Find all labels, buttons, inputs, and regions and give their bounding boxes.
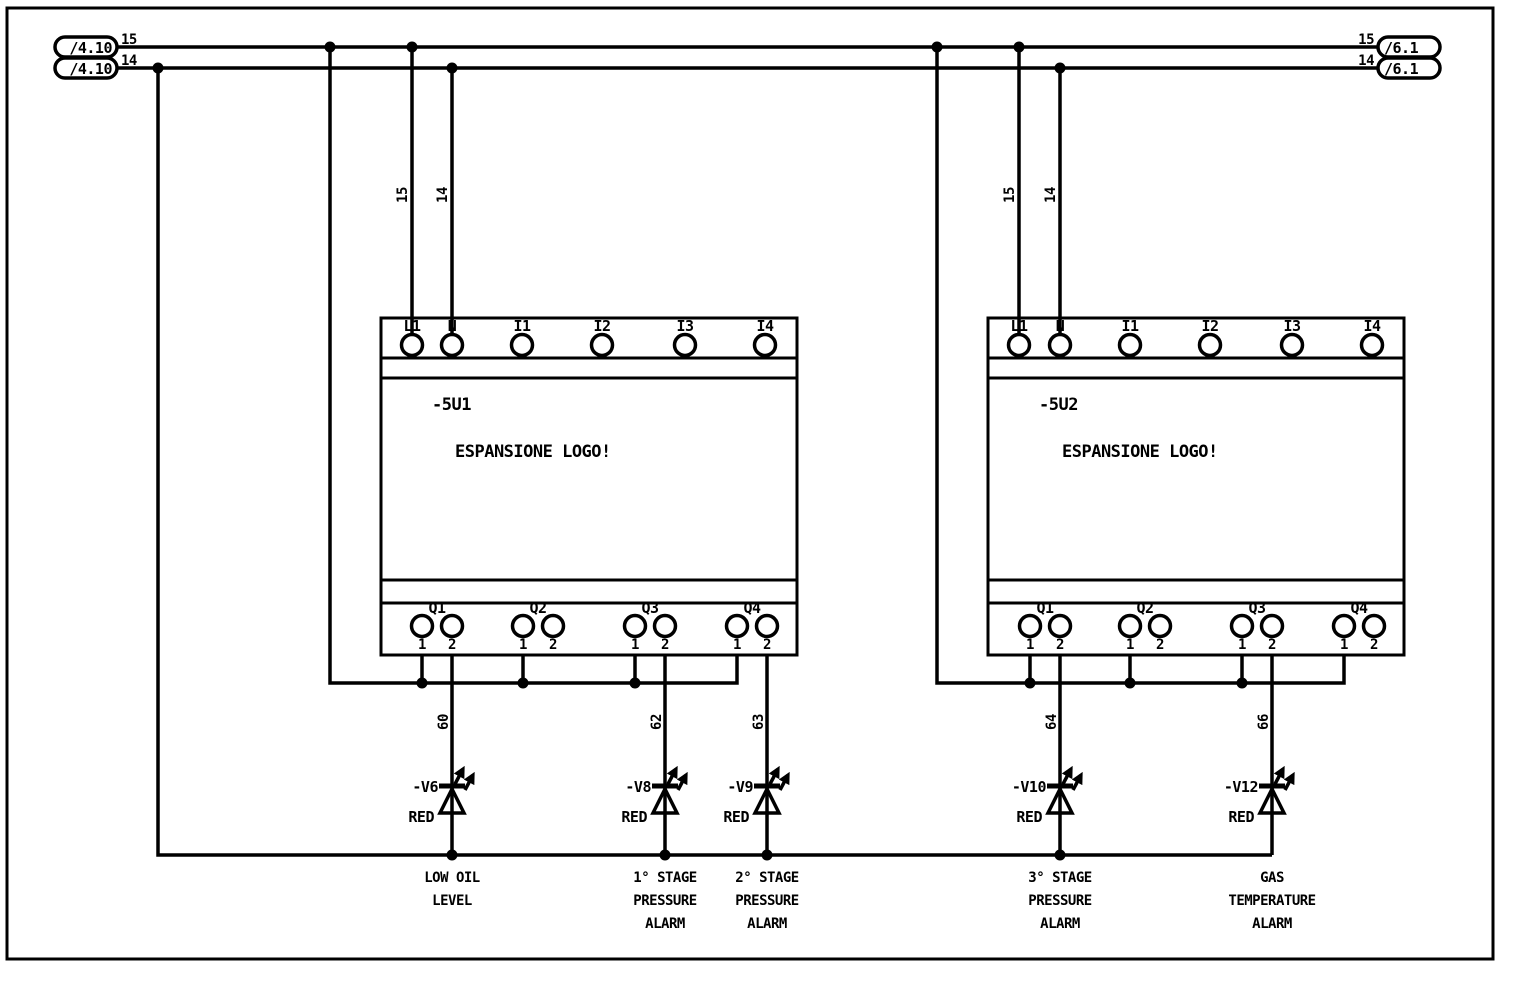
junction-dot bbox=[447, 850, 458, 861]
function-label-line: PRESSURE bbox=[735, 893, 799, 909]
sheet-ref-left-14: /4.10 bbox=[69, 60, 112, 78]
terminal-circle bbox=[1009, 335, 1030, 356]
terminal-label-I1: I1 bbox=[513, 317, 531, 335]
led-branch-V9: 63 -V9 RED 2° STAGE PRESSURE ALARM bbox=[723, 655, 798, 932]
module1-output-bus bbox=[325, 42, 738, 689]
terminal-circle bbox=[512, 335, 533, 356]
module-title: ESPANSIONE LOGO! bbox=[455, 442, 611, 462]
terminal-circle bbox=[1020, 616, 1041, 637]
pin-label: 2 bbox=[1268, 637, 1276, 653]
terminal-circle bbox=[1364, 616, 1385, 637]
led-emission-arrow-icon bbox=[770, 769, 778, 784]
junction-dot bbox=[1014, 42, 1025, 53]
pin-label: 1 bbox=[1340, 637, 1348, 653]
output-label-Q3: Q3 bbox=[1248, 599, 1266, 617]
terminal-circle bbox=[1150, 616, 1171, 637]
schematic-canvas: /4.10 /4.10 15 14 /6.1 /6.1 15 14 15 14 … bbox=[0, 0, 1514, 982]
junction-dot bbox=[630, 678, 641, 689]
terminal-circle bbox=[1050, 335, 1071, 356]
led-emission-arrow-icon bbox=[465, 775, 473, 790]
led-emission-arrow-icon bbox=[1285, 775, 1293, 790]
junction-dot bbox=[1125, 678, 1136, 689]
terminal-label-L1: L1 bbox=[1010, 317, 1028, 335]
module-5U1: -5U1 ESPANSIONE LOGO! L1 N I1 I2 I3 I4 Q… bbox=[381, 317, 797, 655]
module-tag: -5U2 bbox=[1039, 395, 1078, 415]
function-label-line: GAS bbox=[1260, 870, 1284, 886]
wire-label-14: 14 bbox=[435, 187, 451, 203]
terminal-circle bbox=[675, 335, 696, 356]
function-label-line: 3° STAGE bbox=[1028, 870, 1092, 886]
terminal-circle bbox=[513, 616, 534, 637]
led-branch-V12: 66 -V12 RED GAS TEMPERATURE ALARM bbox=[1224, 655, 1316, 932]
terminal-circle bbox=[592, 335, 613, 356]
module-title: ESPANSIONE LOGO! bbox=[1062, 442, 1218, 462]
terminal-circle bbox=[625, 616, 646, 637]
rail-15-label-left: 15 bbox=[121, 32, 137, 48]
function-label-line: ALARM bbox=[747, 916, 787, 932]
led-emission-arrow-icon bbox=[1063, 769, 1071, 784]
pin-label: 2 bbox=[1056, 637, 1064, 653]
led-tag: -V8 bbox=[625, 778, 651, 796]
led-color-label: RED bbox=[408, 808, 434, 826]
function-label-line: 2° STAGE bbox=[735, 870, 799, 886]
bus-wire bbox=[330, 47, 737, 683]
led-branch-V6: 60 -V6 RED LOW OIL LEVEL bbox=[408, 655, 479, 909]
junction-dot bbox=[762, 850, 773, 861]
pin-label: 2 bbox=[549, 637, 557, 653]
output-label-Q4: Q4 bbox=[743, 599, 761, 617]
terminal-circle bbox=[757, 616, 778, 637]
terminal-label-I3: I3 bbox=[676, 317, 694, 335]
module-tag: -5U1 bbox=[432, 395, 471, 415]
output-label-Q2: Q2 bbox=[529, 599, 546, 617]
rail-14-label-right: 14 bbox=[1358, 53, 1374, 69]
pin-label: 1 bbox=[1238, 637, 1246, 653]
terminal-label-N: N bbox=[1056, 317, 1065, 335]
function-label-line: LEVEL bbox=[432, 893, 472, 909]
bus-wire bbox=[937, 47, 1344, 683]
led-branch-V10: 64 -V10 RED 3° STAGE PRESSURE ALARM bbox=[1012, 655, 1092, 932]
led-color-label: RED bbox=[723, 808, 749, 826]
output-label-Q3: Q3 bbox=[641, 599, 659, 617]
function-label-line: 1° STAGE bbox=[633, 870, 697, 886]
output-label-Q1: Q1 bbox=[428, 599, 446, 617]
terminal-label-I4: I4 bbox=[756, 317, 774, 335]
led-color-label: RED bbox=[1016, 808, 1042, 826]
junction-dot bbox=[660, 850, 671, 861]
function-label-line: TEMPERATURE bbox=[1228, 893, 1315, 909]
pin-label: 1 bbox=[733, 637, 741, 653]
sheet-ref-right-15: /6.1 bbox=[1384, 39, 1419, 57]
led-branch-V8: 62 -V8 RED 1° STAGE PRESSURE ALARM bbox=[621, 655, 696, 932]
wire-number: 64 bbox=[1044, 714, 1060, 730]
junction-dot bbox=[1237, 678, 1248, 689]
terminal-label-L1: L1 bbox=[403, 317, 421, 335]
wire-label-14: 14 bbox=[1043, 187, 1059, 203]
pin-label: 1 bbox=[519, 637, 527, 653]
terminal-label-I4: I4 bbox=[1363, 317, 1381, 335]
pin-label: 2 bbox=[1370, 637, 1378, 653]
pin-label: 2 bbox=[1156, 637, 1164, 653]
pin-label: 2 bbox=[448, 637, 456, 653]
function-label-line: PRESSURE bbox=[633, 893, 697, 909]
terminal-circle bbox=[543, 616, 564, 637]
terminal-circle bbox=[727, 616, 748, 637]
junction-dot bbox=[153, 63, 164, 74]
junction-dot bbox=[325, 42, 336, 53]
terminal-circle bbox=[655, 616, 676, 637]
junction-dot bbox=[1055, 850, 1066, 861]
output-label-Q2: Q2 bbox=[1136, 599, 1153, 617]
junction-dot bbox=[1055, 63, 1066, 74]
rail-15-label-right: 15 bbox=[1358, 32, 1374, 48]
terminal-circle bbox=[1262, 616, 1283, 637]
pin-label: 1 bbox=[1126, 637, 1134, 653]
output-label-Q4: Q4 bbox=[1350, 599, 1368, 617]
led-tag: -V6 bbox=[412, 778, 438, 796]
module-5U2: -5U2 ESPANSIONE LOGO! L1 N I1 I2 I3 I4 Q… bbox=[988, 317, 1404, 655]
led-emission-arrow-icon bbox=[668, 769, 676, 784]
function-label-line: PRESSURE bbox=[1028, 893, 1092, 909]
led-emission-arrow-icon bbox=[1275, 769, 1283, 784]
pin-label: 1 bbox=[631, 637, 639, 653]
pin-label: 2 bbox=[763, 637, 771, 653]
terminal-circle bbox=[412, 616, 433, 637]
sheet-ref-left-15: /4.10 bbox=[69, 39, 112, 57]
terminal-circle bbox=[1362, 335, 1383, 356]
drawing-border bbox=[7, 8, 1493, 959]
terminal-circle bbox=[1200, 335, 1221, 356]
terminal-label-I3: I3 bbox=[1283, 317, 1301, 335]
junction-dot bbox=[447, 63, 458, 74]
wire-label-15: 15 bbox=[1002, 187, 1018, 203]
output-label-Q1: Q1 bbox=[1036, 599, 1054, 617]
wire-number: 63 bbox=[751, 714, 767, 730]
led-emission-arrow-icon bbox=[678, 775, 686, 790]
wire-number: 60 bbox=[436, 714, 452, 730]
rail-14-label-left: 14 bbox=[121, 53, 137, 69]
junction-dot bbox=[417, 678, 428, 689]
function-label-line: ALARM bbox=[1040, 916, 1080, 932]
terminal-label-I2: I2 bbox=[593, 317, 610, 335]
junction-dot bbox=[518, 678, 529, 689]
sheet-ref-right-14: /6.1 bbox=[1384, 60, 1419, 78]
terminal-circle bbox=[442, 335, 463, 356]
junction-dot bbox=[1025, 678, 1036, 689]
terminal-circle bbox=[1050, 616, 1071, 637]
led-emission-arrow-icon bbox=[455, 769, 463, 784]
junction-dot bbox=[407, 42, 418, 53]
terminal-label-I1: I1 bbox=[1121, 317, 1139, 335]
function-label-line: ALARM bbox=[645, 916, 685, 932]
function-label-line: LOW OIL bbox=[424, 870, 480, 886]
terminal-circle bbox=[1282, 335, 1303, 356]
led-color-label: RED bbox=[1228, 808, 1254, 826]
terminal-circle bbox=[402, 335, 423, 356]
module2-output-bus bbox=[932, 42, 1345, 689]
wire-label-15: 15 bbox=[395, 187, 411, 203]
led-tag: -V12 bbox=[1224, 778, 1258, 796]
led-tag: -V9 bbox=[727, 778, 753, 796]
led-color-label: RED bbox=[621, 808, 647, 826]
terminal-circle bbox=[755, 335, 776, 356]
terminal-label-I2: I2 bbox=[1201, 317, 1218, 335]
terminal-circle bbox=[1120, 335, 1141, 356]
terminal-circle bbox=[1120, 616, 1141, 637]
function-label-line: ALARM bbox=[1252, 916, 1292, 932]
led-tag: -V10 bbox=[1012, 778, 1047, 796]
terminal-circle bbox=[1232, 616, 1253, 637]
pin-label: 1 bbox=[1026, 637, 1034, 653]
junction-dot bbox=[932, 42, 943, 53]
power-rails: /4.10 /4.10 15 14 /6.1 /6.1 15 14 bbox=[55, 32, 1440, 78]
pin-label: 1 bbox=[418, 637, 426, 653]
wire-number: 62 bbox=[649, 714, 665, 730]
terminal-label-N: N bbox=[448, 317, 457, 335]
led-emission-arrow-icon bbox=[1073, 775, 1081, 790]
wire-number: 66 bbox=[1256, 714, 1272, 730]
pin-label: 2 bbox=[661, 637, 669, 653]
terminal-circle bbox=[442, 616, 463, 637]
schematic-sheet: /4.10 /4.10 15 14 /6.1 /6.1 15 14 15 14 … bbox=[0, 0, 1514, 982]
terminal-circle bbox=[1334, 616, 1355, 637]
led-emission-arrow-icon bbox=[780, 775, 788, 790]
